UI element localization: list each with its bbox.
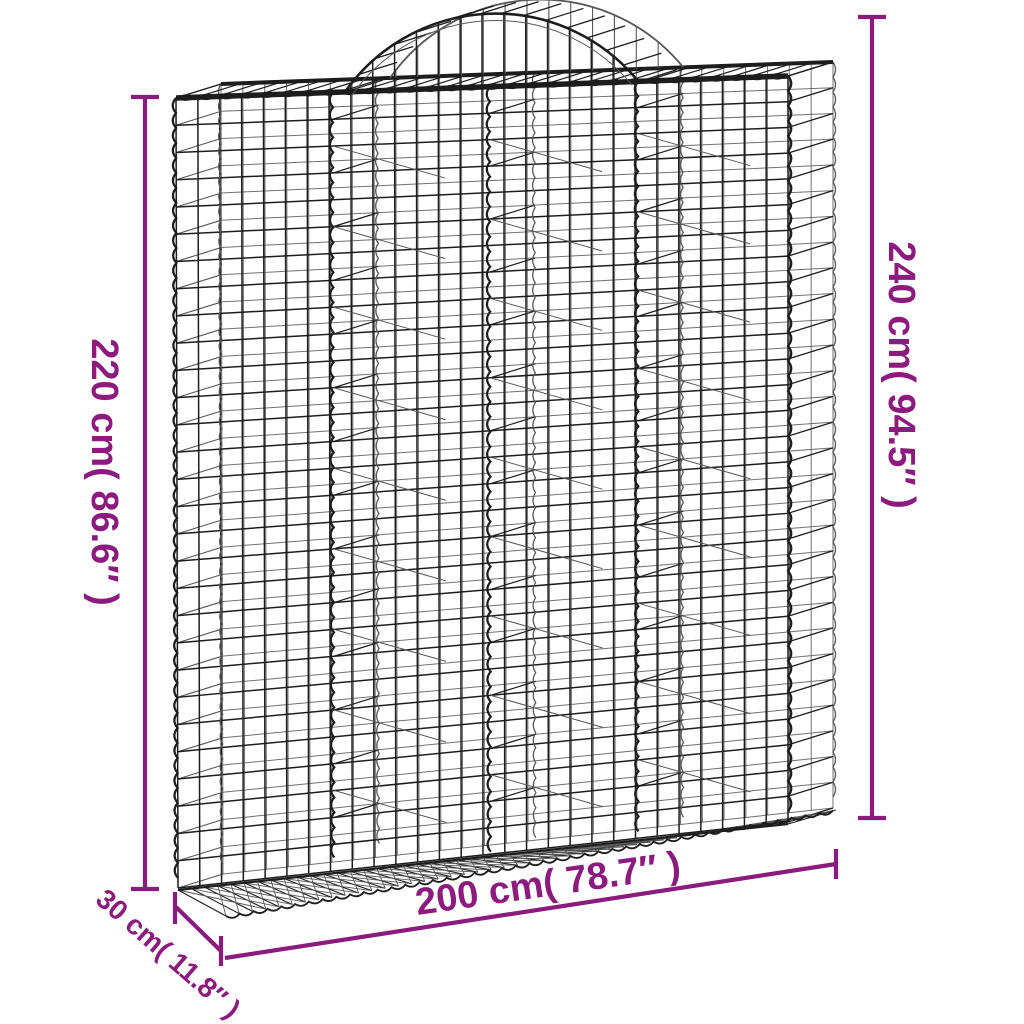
product-dimension-diagram: 220 cm( 86.6″ ) 240 cm( 94.5″ ) 200 cm( … <box>0 0 1024 1024</box>
dimension-label-height-right: 240 cm( 94.5″ ) <box>882 205 920 545</box>
dimension-line-height-left <box>131 97 159 889</box>
dimension-label-height-left: 220 cm( 86.6″ ) <box>85 302 123 642</box>
